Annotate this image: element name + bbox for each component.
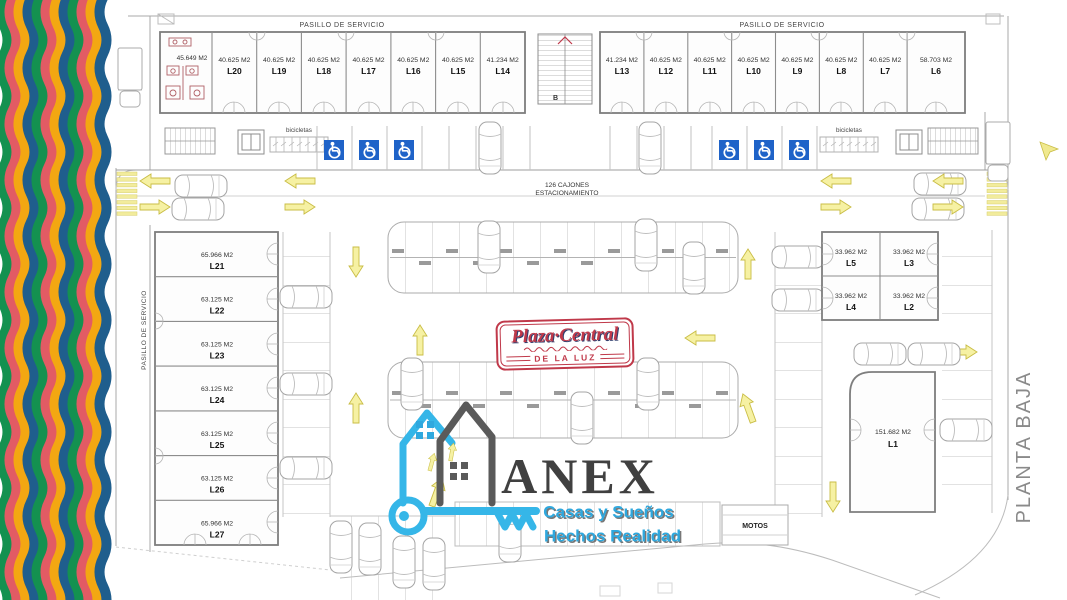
unit-area: 63.125 M2 (201, 431, 233, 438)
unit-label: L6 (931, 66, 941, 76)
unit-label: L27 (210, 529, 225, 539)
block-west: PASILLO DE SERVICIO 65.966 M2 L21 63.125… (141, 225, 278, 552)
handicap-icon (394, 140, 414, 160)
unit-area: 40.625 M2 (397, 57, 429, 64)
plaza-logo-subtitle: DE LA LUZ (534, 352, 596, 364)
block-top-left: PASILLO DE SERVICIO 45.649 M2 40.625 M2 … (160, 22, 525, 113)
unit-label: L11 (703, 66, 717, 76)
unit-label: L7 (880, 66, 890, 76)
block-anchor-l1: 151.682 M2 L1 (850, 372, 935, 512)
anex-windows-gray (450, 462, 468, 480)
unit-label: L12 (658, 66, 673, 76)
plaza-logo-name: Plaza·Central (511, 324, 619, 346)
cursor-arrow (1040, 142, 1058, 160)
unit-label: L17 (361, 66, 376, 76)
unit-area: 63.125 M2 (201, 476, 233, 483)
unit-label: L23 (210, 350, 225, 360)
truck-right (986, 122, 1010, 181)
unit-area: 33.962 M2 (835, 249, 867, 256)
handicap-icon (324, 140, 344, 160)
motos-area: MOTOS (722, 505, 788, 545)
unit-label: L24 (210, 395, 225, 405)
unit-area: 151.682 M2 (875, 429, 911, 436)
parking-count-line2: ESTACIONAMIENTO (535, 190, 598, 197)
unit-area: 41.234 M2 (606, 57, 638, 64)
unit-label: L19 (272, 66, 287, 76)
block-top-right: PASILLO DE SERVICIO 41.234 M2 L13 40.625… (600, 22, 965, 113)
stair-label-b: B (553, 95, 558, 102)
anex-tagline1: Casas y Sueños (543, 503, 673, 522)
handicap-icon (754, 140, 774, 160)
unit-label: L18 (316, 66, 331, 76)
unit-area: 58.703 M2 (920, 57, 952, 64)
unit-label: L3 (904, 258, 914, 268)
truck-left (118, 48, 142, 107)
unit-area: 33.962 M2 (893, 293, 925, 300)
bike-rack-right (820, 137, 878, 152)
unit-label: L15 (451, 66, 466, 76)
unit-area: 63.125 M2 (201, 297, 233, 304)
unit-area: 40.625 M2 (781, 57, 813, 64)
unit-area: 65.966 M2 (201, 520, 233, 527)
unit-label: L16 (406, 66, 421, 76)
unit-label: L26 (210, 485, 225, 495)
unit-label: L4 (846, 302, 856, 312)
unit-area: 40.625 M2 (650, 57, 682, 64)
unit-area: 40.625 M2 (694, 57, 726, 64)
unit-restroom-area: 45.649 M2 (177, 55, 208, 62)
unit-area: 63.125 M2 (201, 386, 233, 393)
handicap-icon (359, 140, 379, 160)
unit-area: 40.625 M2 (738, 57, 770, 64)
handicap-icon (789, 140, 809, 160)
corridor-label-top-right: PASILLO DE SERVICIO (739, 22, 824, 29)
unit-area: 40.625 M2 (352, 57, 384, 64)
unit-label: L2 (904, 302, 914, 312)
anex-tagline2: Hechos Realidad (544, 527, 681, 546)
parking-count-line1: 126 CAJONES (545, 182, 590, 189)
unit-area: 41.234 M2 (487, 57, 519, 64)
plaza-rule-right (600, 353, 624, 359)
block-east: 33.962 M2 L5 33.962 M2 L3 33.962 M2 L4 3… (822, 232, 938, 320)
unit-label: L21 (210, 261, 225, 271)
unit-label: L9 (792, 66, 802, 76)
unit-label: L25 (210, 440, 225, 450)
anex-wordmark: ANEX (501, 448, 659, 504)
decorative-stripe-border (1, 0, 107, 600)
bikes-right-label: bicicletas (836, 127, 862, 134)
plaza-central-logo: Plaza·Central DE LA LUZ (495, 317, 634, 371)
unit-area: 40.625 M2 (308, 57, 340, 64)
bike-rack-left (270, 137, 328, 152)
floor-plan: PASILLO DE SERVICIO 45.649 M2 40.625 M2 … (0, 0, 1067, 600)
unit-area: 40.625 M2 (218, 57, 250, 64)
corridor-label-top-left: PASILLO DE SERVICIO (299, 22, 384, 29)
unit-area: 40.625 M2 (869, 57, 901, 64)
unit-area: 40.625 M2 (263, 57, 295, 64)
elevator-left (238, 130, 264, 154)
unit-label: L8 (836, 66, 846, 76)
unit-label: L10 (746, 66, 761, 76)
bikes-left-label: bicicletas (286, 127, 312, 134)
unit-label: L1 (888, 439, 898, 449)
stairwell-top: B (538, 34, 592, 104)
crosswalk-left (117, 172, 137, 215)
unit-area: 33.962 M2 (835, 293, 867, 300)
unit-area: 33.962 M2 (893, 249, 925, 256)
unit-area: 40.625 M2 (825, 57, 857, 64)
handicap-icon (719, 140, 739, 160)
elevator-right (896, 130, 922, 154)
unit-label: L14 (495, 66, 510, 76)
unit-area: 63.125 M2 (201, 341, 233, 348)
floor-plan-page: PASILLO DE SERVICIO 45.649 M2 40.625 M2 … (0, 0, 1067, 600)
unit-label: L22 (210, 306, 225, 316)
unit-label: L5 (846, 258, 856, 268)
plaza-wave-line (523, 344, 607, 351)
page-title: PLANTA BAJA (1013, 371, 1035, 524)
motos-label: MOTOS (742, 523, 768, 530)
unit-label: L20 (227, 66, 242, 76)
unit-area: 40.625 M2 (442, 57, 474, 64)
unit-area: 65.966 M2 (201, 252, 233, 259)
corridor-label-west: PASILLO DE SERVICIO (141, 290, 148, 370)
unit-label: L13 (615, 66, 630, 76)
plaza-rule-left (506, 356, 530, 362)
